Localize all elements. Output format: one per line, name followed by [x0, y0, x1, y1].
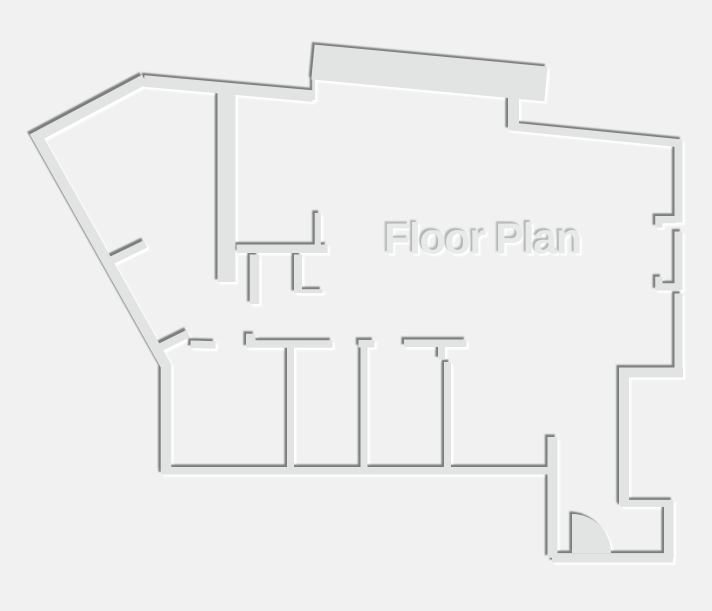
svg-text:Floor Plan: Floor Plan [384, 216, 581, 264]
